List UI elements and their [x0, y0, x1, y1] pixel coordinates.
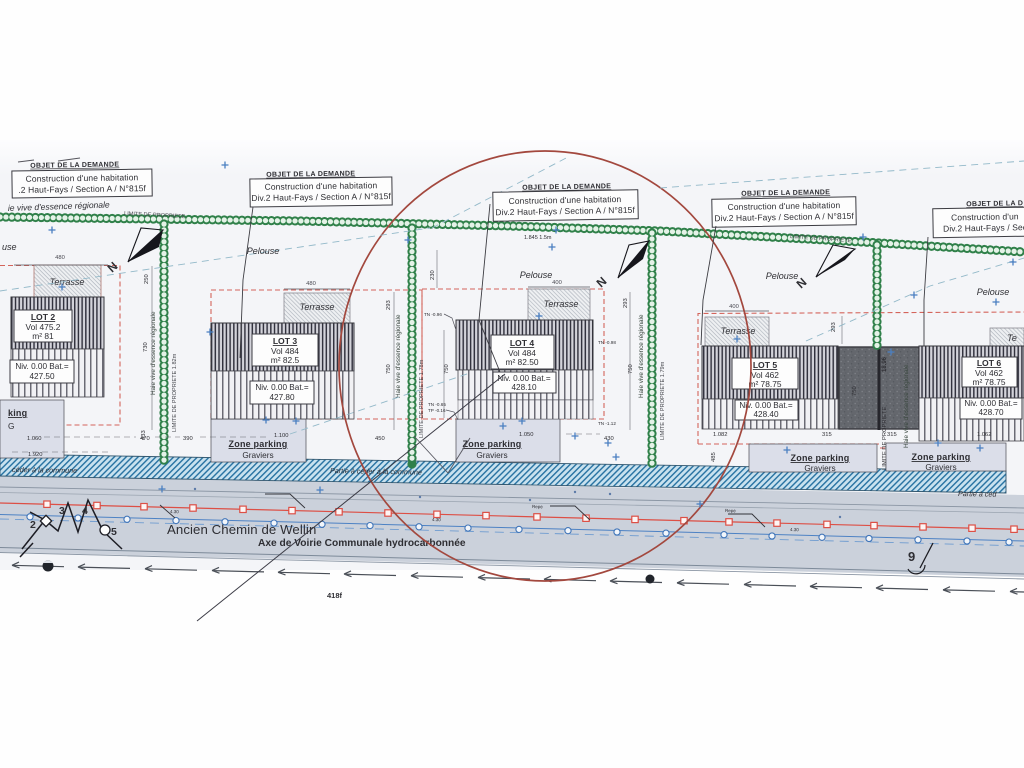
- svg-text:4.30: 4.30: [790, 527, 799, 532]
- svg-text:428.70: 428.70: [978, 408, 1003, 417]
- svg-text:4: 4: [82, 505, 88, 517]
- svg-text:428.10: 428.10: [511, 383, 536, 392]
- svg-text:Pelouse: Pelouse: [766, 271, 799, 281]
- svg-text:433: 433: [141, 430, 147, 440]
- svg-text:G: G: [8, 421, 14, 431]
- svg-text:Niv. 0.00 Bat.=: Niv. 0.00 Bat.=: [964, 399, 1018, 408]
- svg-text:Niv. 0.00 Bat.=: Niv. 0.00 Bat.=: [255, 383, 309, 392]
- svg-text:Div.2 Haut-Fays / Sec: Div.2 Haut-Fays / Sec: [943, 222, 1024, 233]
- svg-text:Construction d'une habitation: Construction d'une habitation: [265, 180, 378, 192]
- svg-text:Construction d'une habitation: Construction d'une habitation: [508, 194, 621, 206]
- svg-text:3: 3: [59, 505, 65, 517]
- svg-text:1.920: 1.920: [28, 452, 43, 458]
- svg-text:Construction d'un: Construction d'un: [951, 211, 1019, 222]
- svg-text:293: 293: [831, 322, 837, 332]
- svg-text:Terrasse: Terrasse: [300, 302, 335, 312]
- svg-text:m² 81: m² 81: [32, 331, 54, 341]
- svg-text:400: 400: [729, 304, 739, 310]
- svg-text:Graviers: Graviers: [242, 450, 273, 460]
- svg-text:céder à la commune: céder à la commune: [12, 465, 77, 475]
- svg-text:430: 430: [604, 436, 614, 442]
- svg-text:1.082: 1.082: [713, 432, 728, 438]
- svg-text:750: 750: [444, 364, 450, 374]
- svg-text:750: 750: [386, 364, 392, 374]
- svg-text:Ancien Chemin de Wellin: Ancien Chemin de Wellin: [167, 522, 316, 537]
- svg-text:400: 400: [552, 280, 562, 286]
- svg-text:Niv. 0.00 Bat.=: Niv. 0.00 Bat.=: [497, 374, 551, 383]
- svg-text:LIMITE DE PROPRIETE 1.79m: LIMITE DE PROPRIETE 1.79m: [660, 361, 666, 440]
- svg-text:485: 485: [711, 452, 717, 462]
- svg-text:18.96: 18.96: [882, 356, 888, 372]
- svg-text:Graviers: Graviers: [804, 463, 835, 473]
- svg-text:1.845 1.5m: 1.845 1.5m: [524, 235, 552, 241]
- svg-text:Pelouse: Pelouse: [520, 270, 553, 280]
- svg-text:Graviers: Graviers: [476, 450, 507, 460]
- svg-text:450: 450: [375, 436, 385, 442]
- svg-text:Partie à céd: Partie à céd: [958, 489, 998, 499]
- svg-text:Partie à céder à la commune: Partie à céder à la commune: [330, 466, 422, 477]
- svg-text:Haie vive d'essence régionale: Haie vive d'essence régionale: [903, 364, 910, 448]
- svg-text:4.30: 4.30: [170, 509, 179, 514]
- svg-text:.2 Haut-Fays / Section A / N°: .2 Haut-Fays / Section A / N°815f: [18, 183, 146, 195]
- svg-text:293: 293: [386, 300, 392, 310]
- svg-text:1.062: 1.062: [977, 432, 992, 438]
- svg-text:Te: Te: [1007, 333, 1017, 343]
- svg-text:Zone parking: Zone parking: [791, 453, 850, 463]
- svg-text:427.50: 427.50: [29, 372, 54, 381]
- svg-text:TN -1.12: TN -1.12: [598, 421, 616, 426]
- svg-text:315: 315: [887, 432, 897, 438]
- svg-text:9: 9: [908, 549, 915, 564]
- svg-text:Haie vive d'essence régionale: Haie vive d'essence régionale: [638, 314, 645, 398]
- svg-text:Repé: Repé: [532, 504, 543, 509]
- svg-text:250: 250: [144, 274, 150, 284]
- svg-text:LOT 6: LOT 6: [977, 358, 1002, 368]
- svg-text:TN -0.98: TN -0.98: [598, 340, 616, 345]
- svg-text:Haie vive d'essence régionale: Haie vive d'essence régionale: [150, 311, 157, 395]
- svg-text:2: 2: [30, 519, 36, 531]
- svg-text:king: king: [8, 408, 27, 418]
- svg-text:Construction d'une habitation: Construction d'une habitation: [26, 172, 139, 184]
- svg-text:Terrasse: Terrasse: [50, 277, 85, 287]
- svg-text:m² 82.50: m² 82.50: [505, 357, 538, 367]
- svg-text:315: 315: [822, 432, 832, 438]
- svg-text:OBJET DE LA DEMANDE: OBJET DE LA DEMANDE: [30, 161, 119, 169]
- svg-text:730: 730: [143, 342, 149, 352]
- svg-text:428.40: 428.40: [753, 410, 778, 419]
- svg-text:293: 293: [623, 298, 629, 308]
- svg-text:Repé: Repé: [725, 508, 736, 513]
- svg-text:m² 78.75: m² 78.75: [748, 379, 781, 389]
- svg-text:LOT 2: LOT 2: [31, 312, 56, 322]
- svg-text:230: 230: [430, 270, 436, 280]
- svg-text:480: 480: [306, 281, 316, 287]
- svg-text:4.30: 4.30: [432, 517, 441, 522]
- svg-text:Niv. 0.00 Bat.=: Niv. 0.00 Bat.=: [15, 362, 69, 371]
- svg-text:LOT 3: LOT 3: [273, 336, 298, 346]
- svg-text:1.050: 1.050: [519, 432, 534, 438]
- svg-text:Graviers: Graviers: [925, 462, 956, 472]
- svg-text:Construction d'une habitation: Construction d'une habitation: [727, 200, 840, 212]
- svg-text:TN -0.96: TN -0.96: [424, 312, 442, 317]
- svg-text:750: 750: [852, 386, 858, 396]
- svg-text:m² 78.75: m² 78.75: [972, 377, 1005, 387]
- svg-text:LOT 4: LOT 4: [510, 338, 535, 348]
- svg-text:LOT 5: LOT 5: [753, 360, 778, 370]
- svg-text:Pelouse: Pelouse: [977, 287, 1010, 297]
- svg-text:Terrasse: Terrasse: [544, 299, 579, 309]
- svg-text:Haie vive d'essence régionale: Haie vive d'essence régionale: [395, 314, 402, 398]
- svg-text:LIMITE DE PROPRIETE 1.82m: LIMITE DE PROPRIETE 1.82m: [172, 353, 178, 432]
- svg-text:Terrasse: Terrasse: [721, 326, 756, 336]
- svg-text:TP -0.16: TP -0.16: [428, 408, 446, 413]
- svg-text:Pelouse: Pelouse: [247, 246, 280, 256]
- svg-text:5: 5: [111, 526, 117, 538]
- svg-text:418f: 418f: [327, 591, 343, 600]
- svg-text:427.80: 427.80: [269, 393, 294, 402]
- svg-text:750: 750: [628, 364, 634, 374]
- svg-text:Zone parking: Zone parking: [912, 452, 971, 462]
- svg-text:1.060: 1.060: [27, 436, 42, 442]
- svg-text:Zone parking: Zone parking: [463, 439, 522, 449]
- svg-text:m² 82.5: m² 82.5: [271, 355, 300, 365]
- svg-text:TN -0.65: TN -0.65: [428, 402, 446, 407]
- svg-text:480: 480: [55, 255, 65, 261]
- svg-text:LIMITE DE PROPRIETE 1.78m: LIMITE DE PROPRIETE 1.78m: [419, 359, 425, 438]
- svg-text:1.100: 1.100: [274, 433, 289, 439]
- svg-text:Div.2 Haut-Fays / Section A /: Div.2 Haut-Fays / Section A / N°815f: [251, 191, 391, 203]
- svg-text:390: 390: [183, 436, 193, 442]
- svg-text:use: use: [2, 242, 17, 252]
- svg-text:Zone parking: Zone parking: [229, 439, 288, 449]
